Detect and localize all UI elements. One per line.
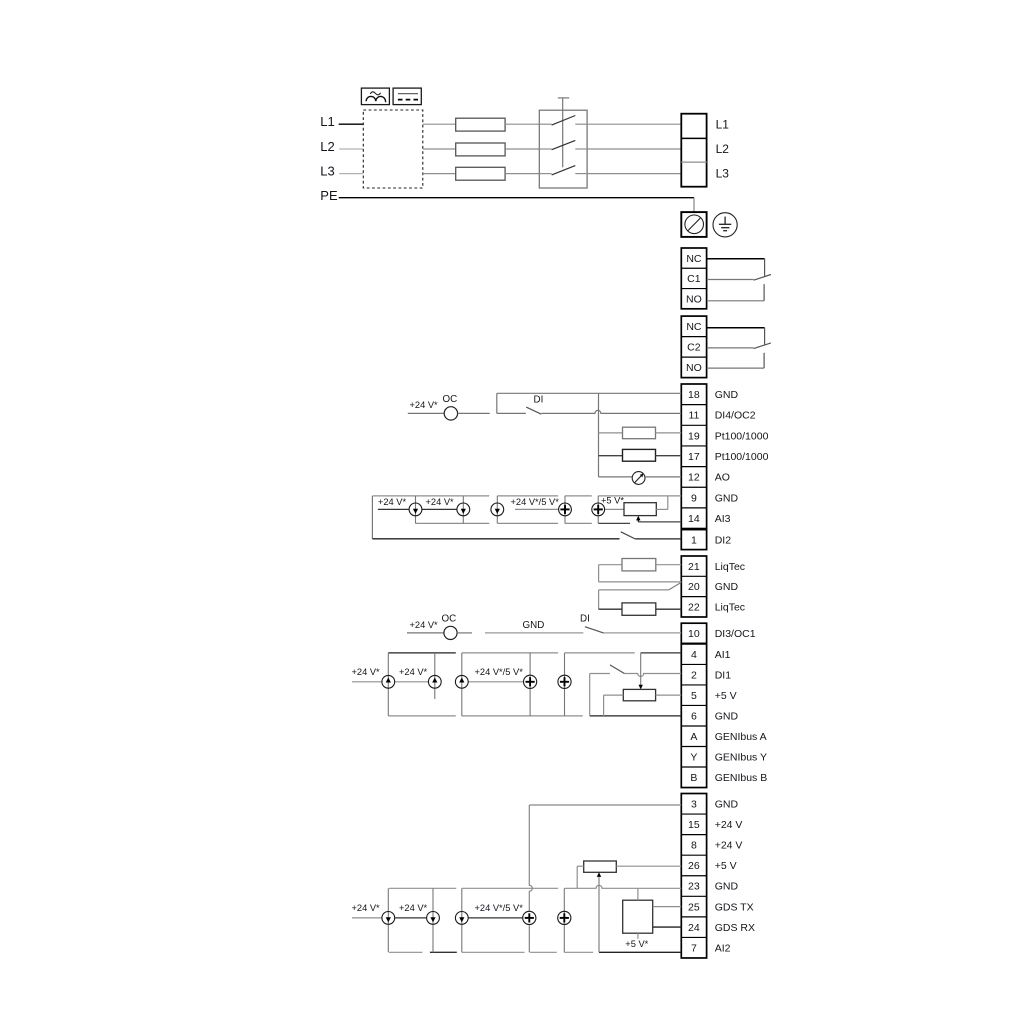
svg-text:GND: GND [715,881,739,893]
svg-text:NC: NC [686,321,702,333]
svg-text:20: 20 [688,581,700,593]
svg-text:+5 V: +5 V [715,860,737,872]
svg-text:L2: L2 [320,139,334,154]
svg-text:14: 14 [688,513,700,525]
svg-text:L3: L3 [320,164,334,179]
svg-text:GDS TX: GDS TX [715,901,754,913]
svg-text:23: 23 [688,881,700,893]
svg-text:4: 4 [691,649,697,661]
svg-text:DI: DI [580,614,590,625]
svg-text:+24 V*/5 V*: +24 V*/5 V* [475,903,524,913]
svg-text:+24 V*/5 V*: +24 V*/5 V* [511,497,560,507]
svg-text:DI2: DI2 [715,534,732,546]
svg-text:+24 V*/5 V*: +24 V*/5 V* [475,667,524,677]
svg-text:DI1: DI1 [715,669,732,681]
svg-text:NC: NC [686,253,702,265]
svg-text:L2: L2 [716,142,730,156]
svg-text:15: 15 [688,819,700,831]
svg-text:GND: GND [715,710,739,722]
svg-text:6: 6 [691,710,697,722]
svg-text:+24 V*: +24 V* [378,497,407,507]
svg-text:26: 26 [688,860,700,872]
svg-text:LiqTec: LiqTec [715,602,745,614]
svg-text:PE: PE [320,188,338,203]
svg-text:8: 8 [691,840,697,852]
svg-text:9: 9 [691,492,697,504]
svg-text:19: 19 [688,430,700,442]
svg-text:L3: L3 [716,166,730,180]
svg-text:C2: C2 [687,342,701,354]
svg-text:AO: AO [715,472,730,484]
svg-text:OC: OC [442,614,457,625]
svg-text:2: 2 [691,669,697,681]
svg-text:17: 17 [688,451,700,463]
svg-text:+24 V: +24 V [715,840,743,852]
svg-text:AI3: AI3 [715,513,731,525]
svg-text:GND: GND [715,492,739,504]
svg-text:24: 24 [688,922,700,934]
svg-text:DI4/OC2: DI4/OC2 [715,410,756,422]
svg-text:10: 10 [688,628,700,640]
svg-text:AI1: AI1 [715,649,731,661]
svg-text:12: 12 [688,472,700,484]
svg-text:Y: Y [690,751,697,763]
svg-text:+5 V*: +5 V* [601,496,624,506]
svg-text:5: 5 [691,690,697,702]
svg-text:+24 V*: +24 V* [399,667,428,677]
svg-text:AI2: AI2 [715,942,731,954]
svg-text:LiqTec: LiqTec [715,561,745,573]
svg-text:+24 V*: +24 V* [426,497,455,507]
svg-text:+24 V*: +24 V* [352,667,381,677]
svg-text:GENIbus Y: GENIbus Y [715,751,767,763]
svg-text:NO: NO [686,293,702,305]
svg-text:+24 V*: +24 V* [399,903,428,913]
svg-text:+24 V*: +24 V* [352,903,381,913]
svg-text:Pt100/1000: Pt100/1000 [715,451,769,463]
svg-text:22: 22 [688,602,700,614]
svg-text:Pt100/1000: Pt100/1000 [715,430,769,442]
svg-text:A: A [690,731,697,743]
svg-text:GDS RX: GDS RX [715,922,755,934]
svg-text:11: 11 [688,410,699,422]
svg-text:+5 V*: +5 V* [625,939,648,949]
svg-text:GND: GND [715,798,739,810]
svg-text:DI3/OC1: DI3/OC1 [715,628,756,640]
svg-text:GENIbus A: GENIbus A [715,731,767,743]
svg-text:OC: OC [443,394,458,405]
svg-text:+5 V: +5 V [715,690,737,702]
svg-text:GND: GND [715,581,739,593]
svg-text:21: 21 [688,561,700,573]
svg-text:18: 18 [688,389,700,401]
svg-text:25: 25 [688,901,700,913]
svg-text:7: 7 [691,942,697,954]
svg-text:B: B [690,772,697,784]
svg-text:+24 V: +24 V [715,819,743,831]
svg-text:GENIbus B: GENIbus B [715,772,768,784]
svg-text:GND: GND [715,389,739,401]
svg-text:3: 3 [691,798,697,810]
svg-text:+24 V*: +24 V* [410,400,439,410]
svg-text:+24 V*: +24 V* [410,620,439,630]
svg-text:NO: NO [686,362,702,374]
svg-text:1: 1 [691,534,697,546]
svg-text:GND: GND [523,620,545,631]
svg-text:DI: DI [534,395,544,406]
svg-text:L1: L1 [716,117,730,131]
svg-text:L1: L1 [320,114,334,129]
svg-text:C1: C1 [687,273,701,285]
